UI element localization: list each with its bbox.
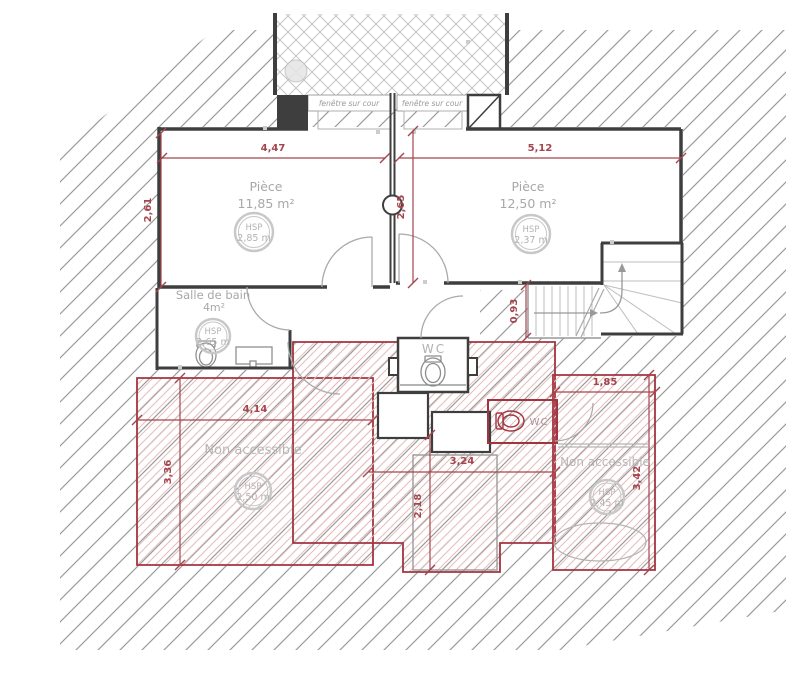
room2-hsp-value: 2,37 m xyxy=(514,235,547,246)
room1-area: 11,85 m² xyxy=(238,196,295,211)
room2-name: Pièce xyxy=(512,179,545,194)
na-right-name: Non accessible xyxy=(560,455,650,469)
dim-center-width: 3,24 xyxy=(450,456,475,467)
bathroom-hsp-title: HSP xyxy=(205,327,222,337)
wall-pier-right xyxy=(468,95,500,129)
dim-center-height: 2,65 xyxy=(396,195,407,220)
duct-box-1 xyxy=(378,393,428,438)
dim-na-right-width: 1,85 xyxy=(593,377,618,388)
na-left-hsp-title: HSP xyxy=(245,482,262,492)
courtyard-plant xyxy=(285,60,307,82)
na-right-hsp-value: 2,45 m xyxy=(590,498,623,509)
floorplan-svg: fenêtre sur cour fenêtre sur cour xyxy=(0,0,800,675)
dim-center-lower-height: 2,18 xyxy=(413,494,424,519)
wc-room: WC xyxy=(389,338,477,392)
floorplan-canvas: fenêtre sur cour fenêtre sur cour xyxy=(0,0,800,675)
na-left-name: Non accessible xyxy=(204,443,301,458)
bathroom-hsp-value: 2,65 m xyxy=(196,337,229,348)
na-right-hsp-title: HSP xyxy=(599,488,616,498)
dim-na-right-height: 3,42 xyxy=(632,466,643,491)
dim-room2-width: 5,12 xyxy=(528,143,553,154)
wc-label: WC xyxy=(422,342,446,356)
room1-hsp-value: 2,85 m xyxy=(237,233,270,244)
dim-na-left-width: 4,14 xyxy=(243,404,268,415)
dim-room1-height: 2,61 xyxy=(143,198,154,223)
room2-area: 12,50 m² xyxy=(500,196,557,211)
duct-box-2 xyxy=(432,412,490,452)
dim-na-left-height: 3,36 xyxy=(163,460,174,485)
window-left-label: fenêtre sur cour xyxy=(319,99,380,108)
wc2-label: WC xyxy=(530,417,549,428)
dim-stair-height: 0,93 xyxy=(509,299,520,324)
bathroom-area: 4m² xyxy=(203,301,225,314)
dim-room1-width: 4,47 xyxy=(261,143,286,154)
bathroom-name: Salle de bain xyxy=(176,288,250,302)
room1-name: Pièce xyxy=(250,179,283,194)
room2-hsp-title: HSP xyxy=(523,225,540,235)
na-left-hsp-value: 2,50 m xyxy=(236,492,269,503)
wall-pier-left xyxy=(277,95,308,129)
courtyard xyxy=(275,13,507,95)
window-right-label: fenêtre sur cour xyxy=(402,99,463,108)
room1-hsp-title: HSP xyxy=(246,223,263,233)
